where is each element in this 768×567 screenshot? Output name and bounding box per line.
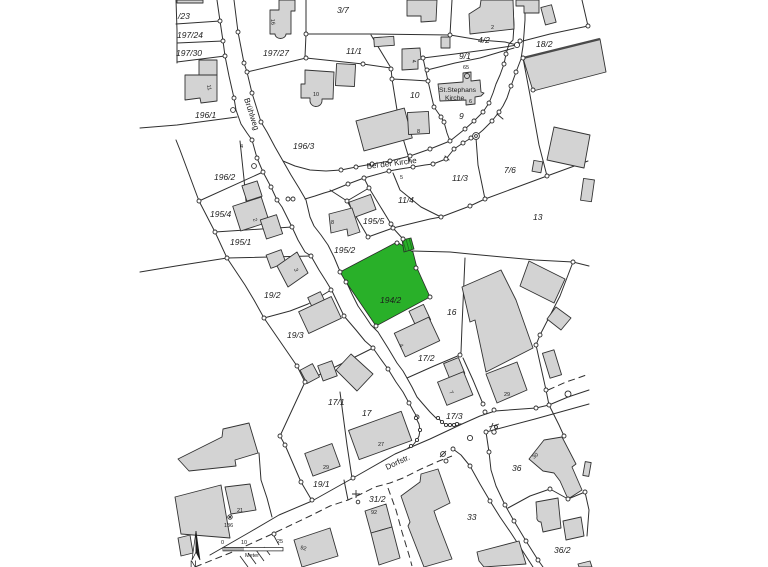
svg-text:19/3: 19/3 (287, 330, 304, 340)
svg-text:196/2: 196/2 (214, 172, 236, 182)
svg-text:19/1: 19/1 (313, 479, 330, 489)
svg-text:6: 6 (469, 99, 472, 105)
svg-text:195/5: 195/5 (363, 216, 385, 226)
svg-text:16: 16 (269, 19, 276, 26)
svg-text:11: 11 (205, 84, 212, 91)
svg-text:10: 10 (313, 92, 319, 98)
svg-text:4/2: 4/2 (478, 35, 490, 45)
svg-text:8: 8 (417, 129, 420, 135)
svg-text:19/2: 19/2 (264, 290, 281, 300)
svg-text:9: 9 (459, 111, 464, 121)
svg-text:Meter: Meter (245, 553, 259, 559)
svg-text:33: 33 (467, 512, 477, 522)
svg-text:195/2: 195/2 (334, 245, 356, 255)
svg-text:11/4: 11/4 (398, 195, 414, 205)
svg-text:92: 92 (371, 510, 377, 516)
svg-text:2: 2 (491, 25, 494, 31)
svg-text:27: 27 (378, 442, 384, 448)
svg-text:4: 4 (240, 144, 243, 150)
svg-text:36: 36 (512, 463, 522, 473)
svg-text:29: 29 (504, 392, 510, 398)
svg-text:65: 65 (463, 65, 469, 71)
svg-text:8: 8 (331, 220, 334, 226)
svg-text:197/30: 197/30 (176, 48, 202, 58)
svg-text:Kirche: Kirche (445, 95, 464, 102)
svg-text:194/2: 194/2 (380, 295, 402, 305)
svg-text:29: 29 (323, 465, 329, 471)
svg-text:0: 0 (221, 540, 224, 546)
svg-text:7/6: 7/6 (504, 165, 516, 175)
svg-text:/23: /23 (177, 11, 190, 21)
svg-text:17/2: 17/2 (418, 353, 435, 363)
svg-text:136: 136 (224, 523, 233, 529)
svg-text:5: 5 (400, 175, 403, 181)
svg-text:13: 13 (533, 212, 543, 222)
svg-text:17: 17 (362, 408, 372, 418)
svg-text:11/1: 11/1 (346, 46, 362, 56)
svg-text:17/1: 17/1 (328, 397, 345, 407)
svg-text:St.Stephans: St.Stephans (439, 87, 477, 94)
svg-text:25: 25 (277, 539, 283, 545)
svg-text:195/4: 195/4 (210, 209, 232, 219)
svg-text:10: 10 (410, 90, 420, 100)
svg-text:10: 10 (241, 540, 247, 546)
svg-text:N: N (190, 559, 197, 567)
svg-text:31/2: 31/2 (369, 494, 386, 504)
svg-text:197/27: 197/27 (263, 48, 289, 58)
svg-text:21: 21 (237, 508, 243, 514)
svg-text:17/3: 17/3 (446, 411, 463, 421)
svg-text:18/2: 18/2 (536, 39, 553, 49)
svg-text:195/1: 195/1 (230, 237, 252, 247)
svg-text:11/3: 11/3 (452, 173, 468, 183)
svg-text:3/7: 3/7 (337, 5, 349, 15)
svg-text:9/1: 9/1 (459, 51, 471, 61)
svg-text:16: 16 (447, 307, 457, 317)
svg-text:196/3: 196/3 (293, 141, 315, 151)
svg-text:36/2: 36/2 (554, 545, 571, 555)
svg-text:197/24: 197/24 (177, 30, 203, 40)
svg-text:196/1: 196/1 (195, 110, 217, 120)
